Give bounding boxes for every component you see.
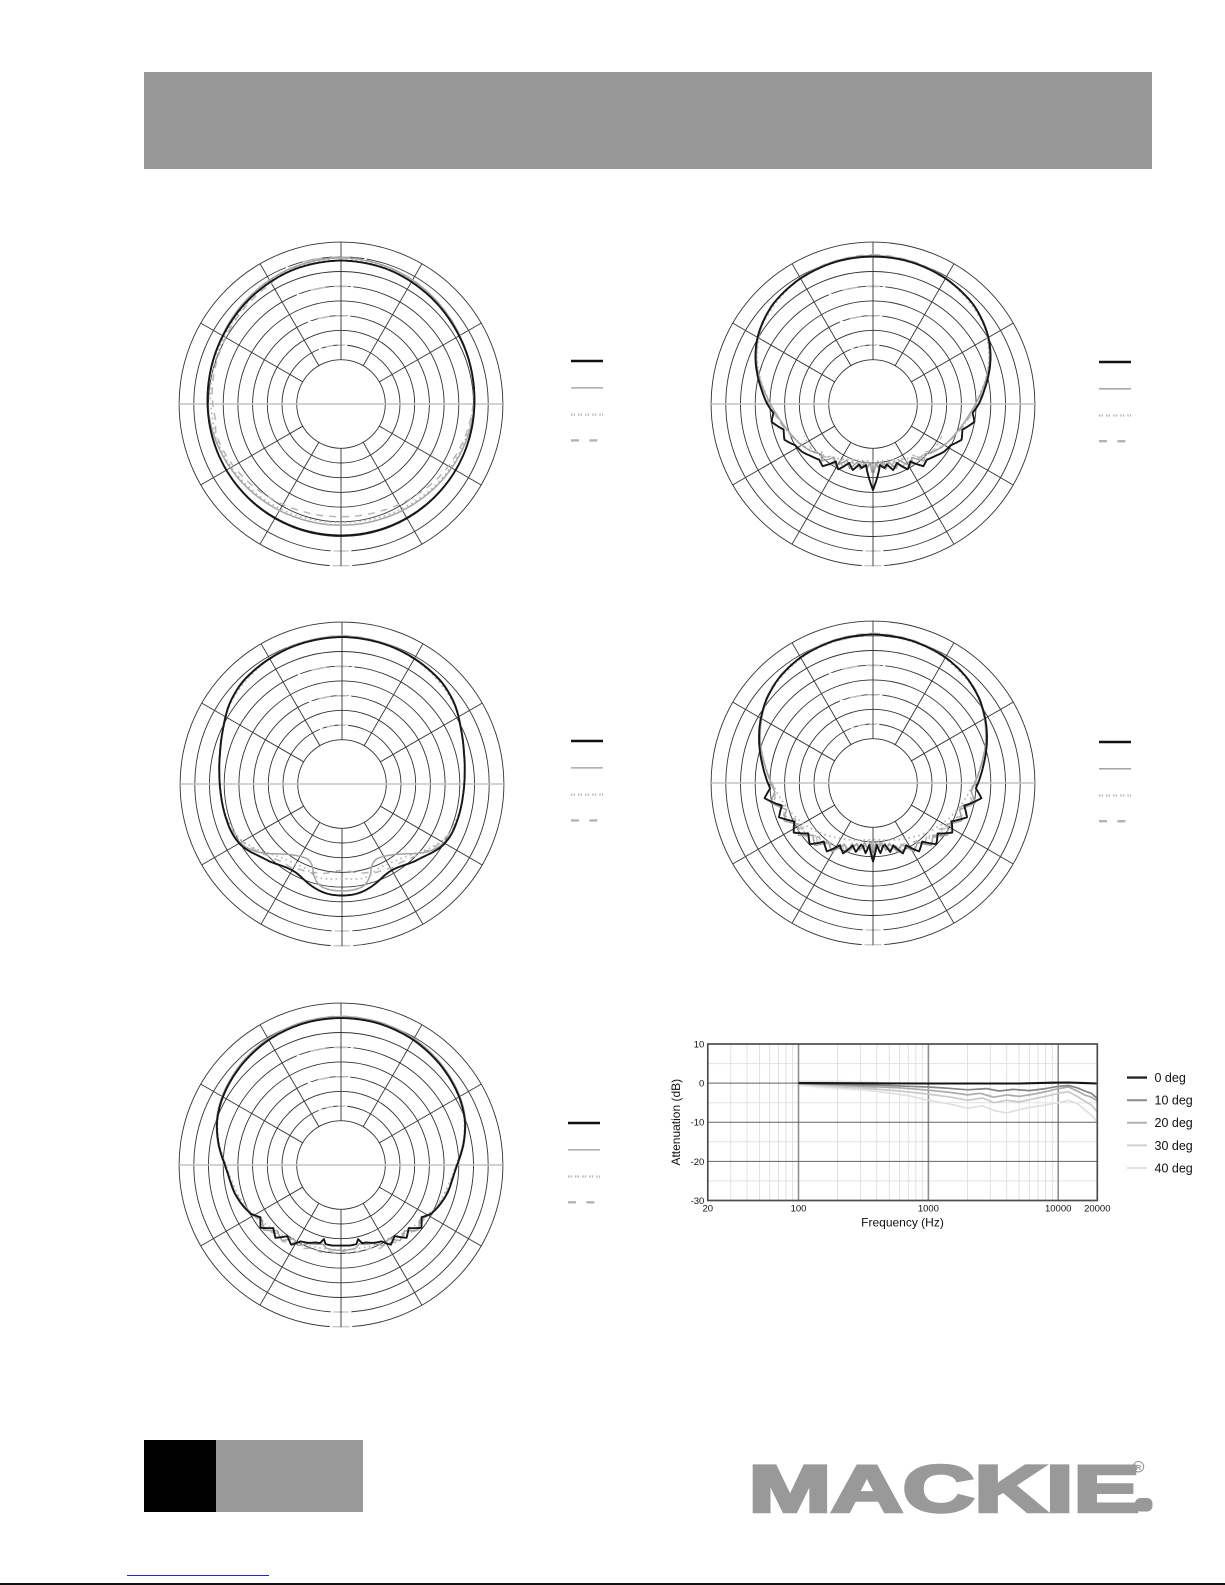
svg-text:MACKIE: MACKIE: [749, 1452, 1140, 1526]
svg-text:100: 100: [791, 1204, 807, 1215]
svg-text:10000: 10000: [1045, 1204, 1071, 1215]
svg-text:20: 20: [703, 1204, 714, 1215]
svg-text:20 deg: 20 deg: [1155, 1116, 1193, 1130]
svg-text:Attenuation (dB): Attenuation (dB): [669, 1079, 683, 1166]
svg-text:10: 10: [694, 1039, 705, 1050]
svg-text:Frequency (Hz): Frequency (Hz): [861, 1216, 944, 1230]
svg-text:-20: -20: [691, 1157, 705, 1168]
svg-text:1000: 1000: [918, 1204, 939, 1215]
svg-text:0: 0: [699, 1079, 704, 1090]
svg-text:30 deg: 30 deg: [1155, 1139, 1193, 1153]
svg-text:40 deg: 40 deg: [1155, 1161, 1193, 1175]
svg-text:-10: -10: [691, 1118, 705, 1129]
svg-text:R: R: [1136, 1463, 1142, 1472]
svg-text:10 deg: 10 deg: [1155, 1094, 1193, 1108]
svg-text:0 deg: 0 deg: [1155, 1071, 1186, 1085]
svg-text:20000: 20000: [1084, 1204, 1110, 1215]
